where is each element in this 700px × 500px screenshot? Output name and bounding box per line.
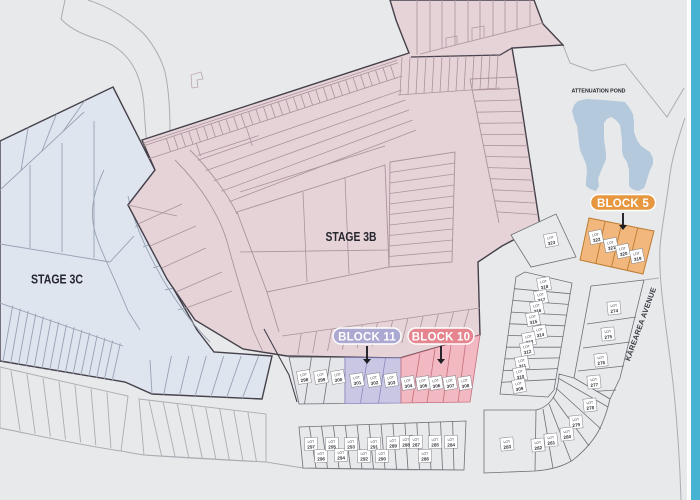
svg-text:278: 278 <box>586 405 595 411</box>
svg-text:285: 285 <box>431 442 439 447</box>
svg-text:LOT: LOT <box>431 438 438 442</box>
svg-text:282: 282 <box>534 445 543 451</box>
svg-text:LOT: LOT <box>402 438 409 442</box>
svg-text:LOT: LOT <box>347 440 354 444</box>
svg-text:LOT: LOT <box>389 439 396 443</box>
svg-text:286: 286 <box>421 456 429 461</box>
svg-text:276: 276 <box>597 360 606 366</box>
svg-text:LOT: LOT <box>378 452 385 456</box>
svg-text:289: 289 <box>389 443 397 448</box>
svg-text:292: 292 <box>360 456 368 461</box>
svg-text:LOT: LOT <box>328 440 335 444</box>
svg-text:LOT: LOT <box>360 452 367 456</box>
svg-text:290: 290 <box>378 456 386 461</box>
svg-text:LOT: LOT <box>337 451 344 455</box>
svg-text:LOT: LOT <box>421 452 428 456</box>
svg-text:ATTENUATION POND: ATTENUATION POND <box>572 89 626 95</box>
svg-text:294: 294 <box>337 455 345 460</box>
svg-text:277: 277 <box>590 382 599 388</box>
svg-text:BLOCK 10: BLOCK 10 <box>412 331 470 343</box>
svg-text:283: 283 <box>503 444 512 450</box>
svg-text:284: 284 <box>447 442 455 447</box>
svg-text:275: 275 <box>604 334 613 340</box>
svg-text:296: 296 <box>317 456 325 461</box>
svg-text:LOT: LOT <box>447 438 454 442</box>
svg-text:LOT: LOT <box>307 440 314 444</box>
svg-text:287: 287 <box>412 442 420 447</box>
svg-text:LOT: LOT <box>412 438 419 442</box>
svg-text:297: 297 <box>307 444 315 449</box>
svg-text:291: 291 <box>370 444 378 449</box>
svg-text:280: 280 <box>563 434 572 440</box>
svg-text:STAGE 3B: STAGE 3B <box>326 229 377 244</box>
svg-text:LOT: LOT <box>317 452 324 456</box>
svg-text:BLOCK 5: BLOCK 5 <box>597 198 649 210</box>
svg-text:279: 279 <box>572 422 581 428</box>
svg-text:281: 281 <box>547 440 556 446</box>
svg-text:LOT: LOT <box>370 440 377 444</box>
svg-text:BLOCK 11: BLOCK 11 <box>338 331 396 343</box>
svg-text:274: 274 <box>610 308 619 314</box>
svg-text:STAGE 3C: STAGE 3C <box>31 272 83 287</box>
svg-text:293: 293 <box>347 444 355 449</box>
